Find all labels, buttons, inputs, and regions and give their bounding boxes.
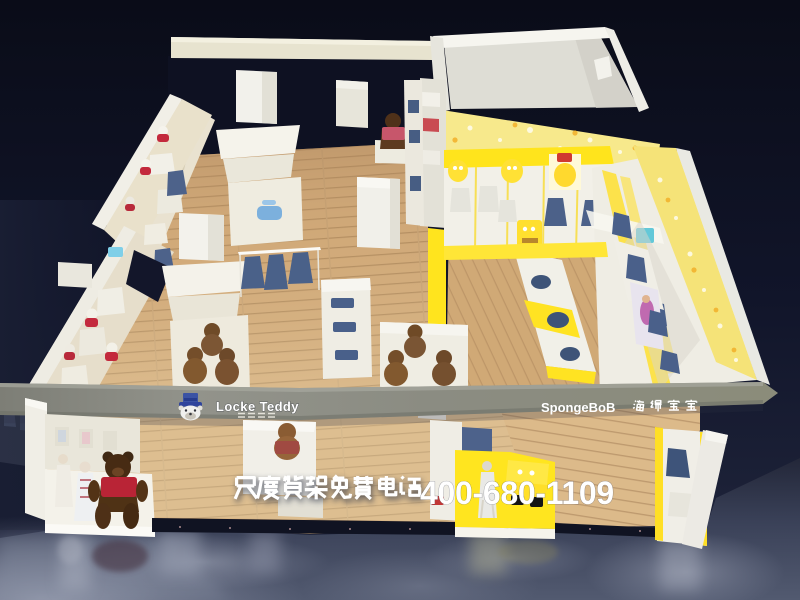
svg-text:Locke Teddy: Locke Teddy xyxy=(216,399,299,414)
svg-text:SpongeBoB: SpongeBoB xyxy=(541,400,615,415)
svg-text:400-680-1109: 400-680-1109 xyxy=(420,475,614,511)
